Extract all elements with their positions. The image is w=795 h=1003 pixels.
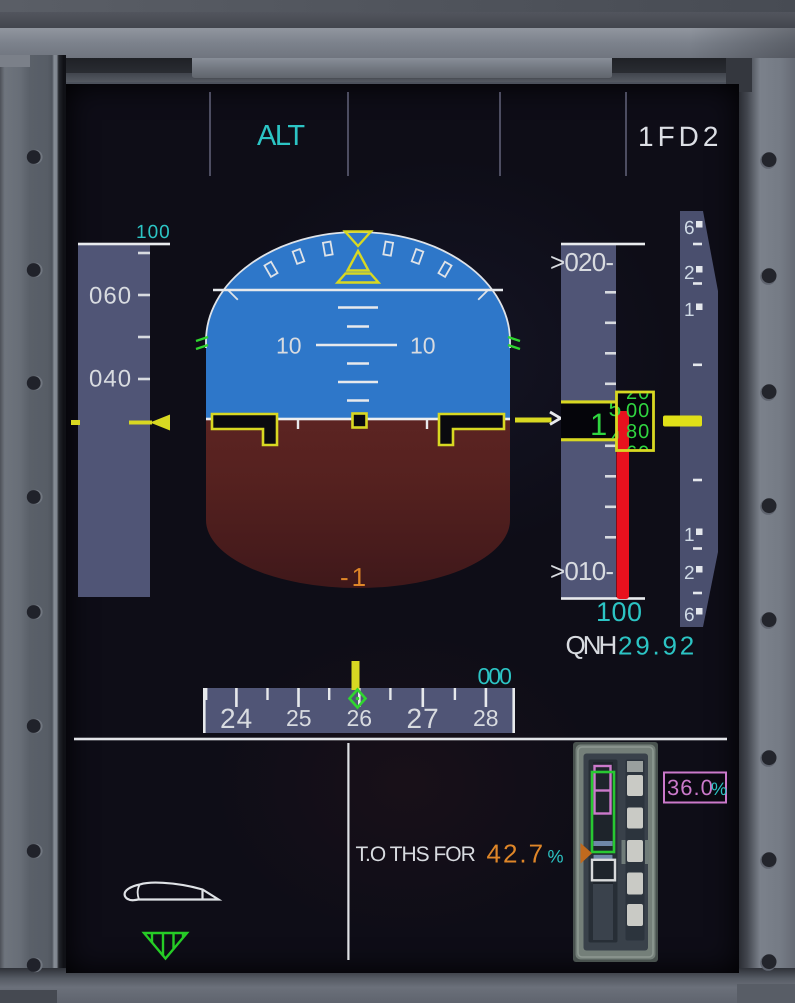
svg-text:ALT: ALT xyxy=(257,120,305,152)
svg-text:%: % xyxy=(548,847,564,867)
svg-text:36.0: 36.0 xyxy=(667,775,714,800)
svg-text:060: 060 xyxy=(89,283,132,310)
svg-text:10: 10 xyxy=(410,333,436,359)
svg-text:100: 100 xyxy=(136,222,171,243)
svg-text:2: 2 xyxy=(684,563,695,584)
svg-text:00: 00 xyxy=(626,400,650,422)
svg-text:1: 1 xyxy=(684,525,695,546)
svg-text:-1: -1 xyxy=(340,562,369,592)
svg-text:29.92: 29.92 xyxy=(618,631,697,661)
svg-text:QNH: QNH xyxy=(566,630,616,660)
svg-text:80: 80 xyxy=(626,421,650,443)
svg-text:>020-: >020- xyxy=(550,247,613,277)
svg-text:040: 040 xyxy=(89,366,132,393)
svg-text:28: 28 xyxy=(473,705,499,731)
svg-text:000: 000 xyxy=(478,663,512,689)
svg-text:25: 25 xyxy=(286,705,312,731)
svg-text:10: 10 xyxy=(276,333,302,359)
svg-text:26: 26 xyxy=(347,705,373,731)
svg-text:1FD2: 1FD2 xyxy=(638,121,722,152)
svg-text:1: 1 xyxy=(590,407,607,442)
svg-text:>010-: >010- xyxy=(550,556,613,586)
svg-text:6: 6 xyxy=(684,218,695,239)
svg-text:2: 2 xyxy=(684,263,695,284)
svg-text:6: 6 xyxy=(684,605,695,626)
svg-text:42.7: 42.7 xyxy=(487,839,546,869)
svg-text:%: % xyxy=(711,779,727,799)
svg-text:24: 24 xyxy=(220,703,253,734)
svg-text:100: 100 xyxy=(596,597,643,627)
svg-text:T.O THS FOR: T.O THS FOR xyxy=(356,843,476,866)
svg-text:60: 60 xyxy=(626,442,650,464)
svg-text:27: 27 xyxy=(407,703,440,734)
svg-text:1: 1 xyxy=(684,300,695,321)
